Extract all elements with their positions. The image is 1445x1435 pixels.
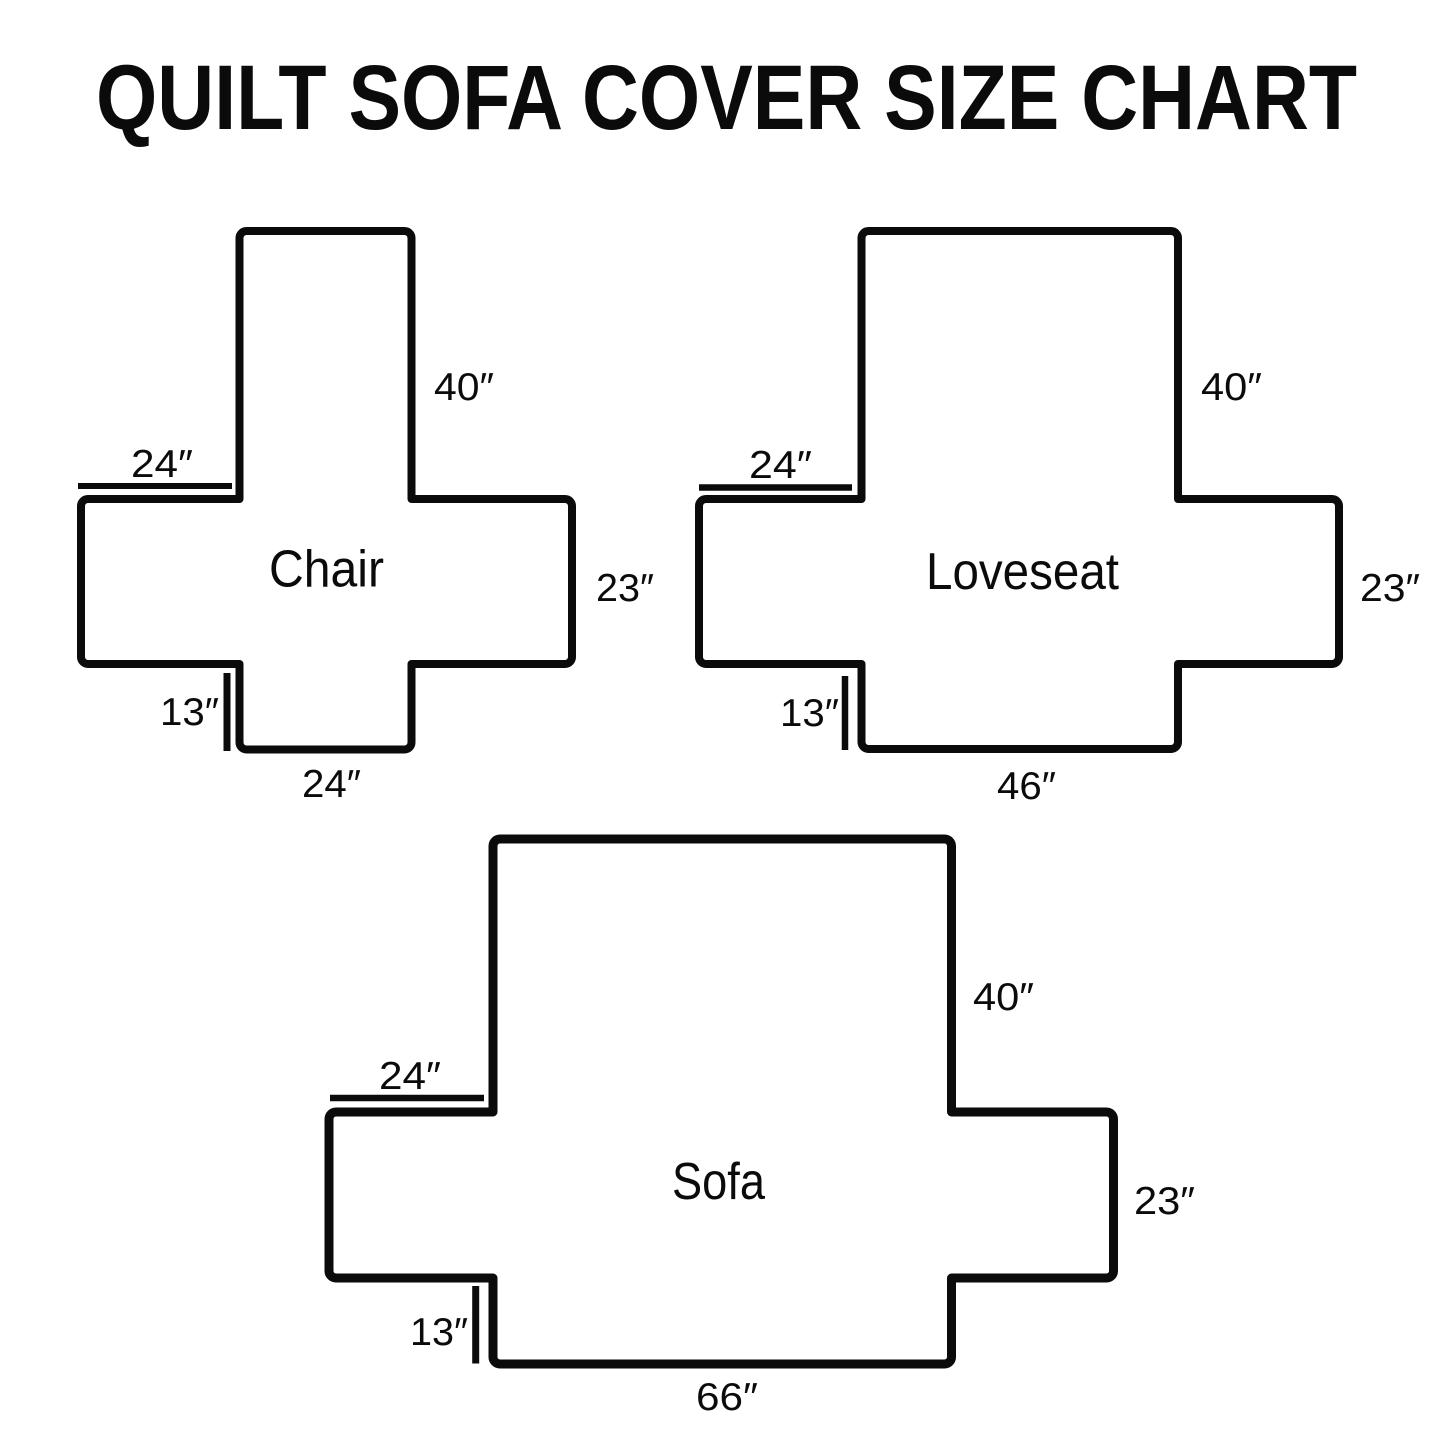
svg-text:24″: 24″	[131, 443, 193, 486]
svg-text:40″: 40″	[1201, 366, 1262, 409]
svg-text:Chair: Chair	[269, 541, 384, 599]
svg-text:24″: 24″	[302, 763, 361, 806]
svg-text:24″: 24″	[749, 444, 812, 487]
svg-text:23″: 23″	[596, 567, 654, 610]
svg-text:13″: 13″	[160, 691, 219, 734]
svg-text:66″: 66″	[696, 1376, 758, 1419]
svg-text:Sofa: Sofa	[672, 1153, 765, 1211]
svg-text:46″: 46″	[997, 765, 1056, 808]
svg-text:13″: 13″	[780, 692, 839, 735]
svg-text:23″: 23″	[1360, 567, 1420, 610]
svg-text:QUILT SOFA COVER SIZE CHART: QUILT SOFA COVER SIZE CHART	[96, 47, 1357, 149]
svg-text:23″: 23″	[1134, 1180, 1195, 1223]
svg-text:Loveseat: Loveseat	[926, 543, 1120, 601]
svg-text:40″: 40″	[973, 976, 1034, 1019]
svg-text:13″: 13″	[410, 1311, 468, 1354]
svg-text:24″: 24″	[379, 1055, 441, 1098]
svg-text:40″: 40″	[434, 366, 494, 409]
